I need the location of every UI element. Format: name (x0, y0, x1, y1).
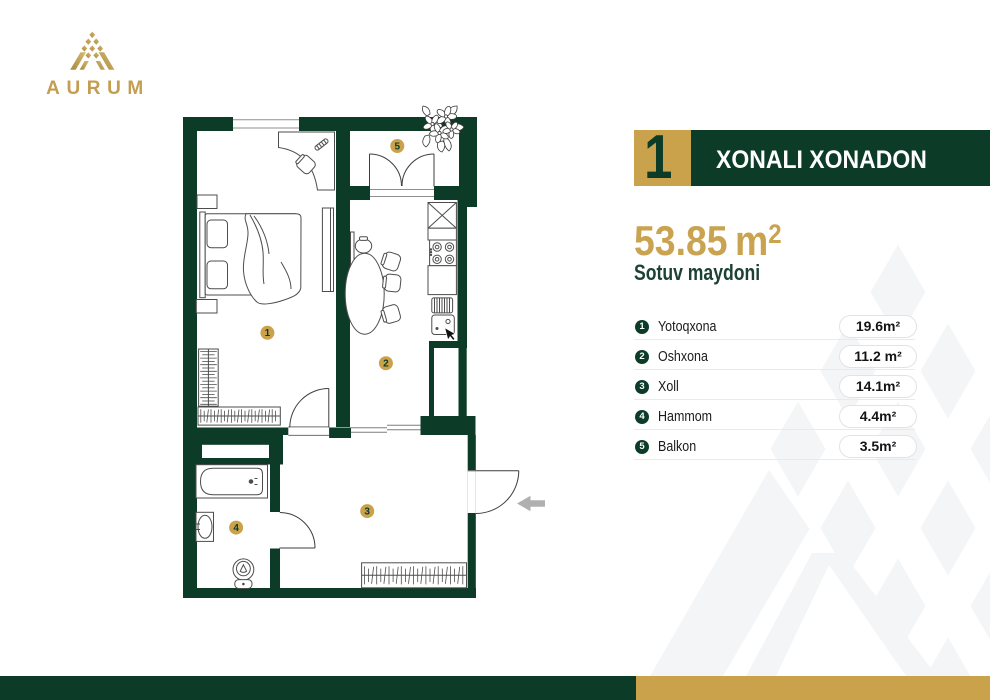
svg-text:2: 2 (383, 359, 389, 370)
svg-text:5: 5 (395, 141, 401, 152)
svg-text:1: 1 (265, 328, 271, 339)
svg-text:3: 3 (364, 507, 370, 518)
svg-text:4: 4 (233, 523, 239, 534)
